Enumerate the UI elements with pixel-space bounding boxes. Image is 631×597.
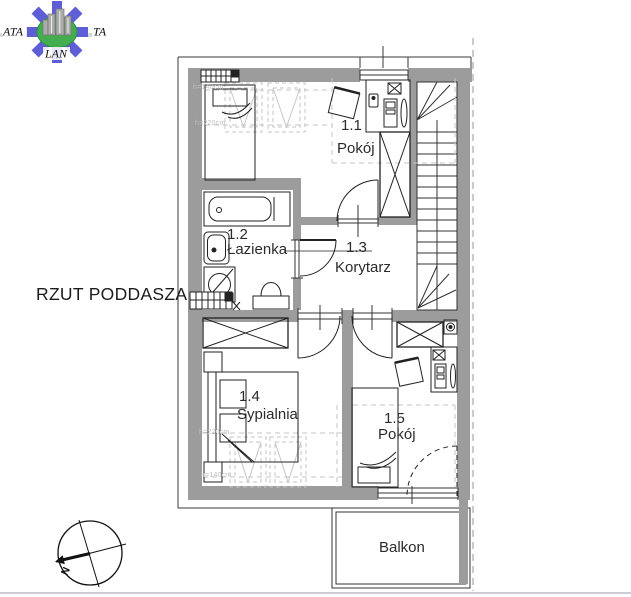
height-label-top-near: h=140cm [193,84,223,91]
chair-icon [328,87,360,119]
desk-icon [431,347,457,392]
room-1-5-name: Pokój [378,427,416,443]
shelf-icon [444,320,457,334]
wardrobe-icon [397,322,443,347]
building-outline [178,46,471,508]
plan-title: RZUT PODDASZA [36,285,187,303]
room-1-5-number: 1.5 [384,411,405,427]
height-label-top-inner: h=220cm [195,120,225,127]
radiator-icon [201,70,239,82]
floor-plan-page: ATA TA LAN [0,0,631,597]
radiator-icon [190,292,240,310]
chair-icon [395,358,423,386]
room-1-1-name: Pokój [337,141,375,157]
furniture-room-1-5 [352,320,457,487]
wardrobe-icon [203,318,288,348]
room-1-4-name: Sypialnia [237,407,298,423]
staircase [417,82,457,310]
room-1-2-name: Łazienka [227,242,287,258]
room-1-1-number: 1.1 [341,118,362,134]
height-label-bottom-inner: h=220cm [199,429,229,436]
desk-icon [366,80,410,132]
north-compass-icon: N [50,516,130,592]
toilet-icon [253,283,289,310]
windows-and-thresholds [291,70,458,504]
height-label-bottom-near: h=140cm [201,472,231,479]
walls [188,68,470,584]
doors [298,180,457,496]
furniture-room-1-1 [201,70,410,217]
room-1-3-name: Korytarz [335,260,391,276]
nightstand-icon [204,352,222,372]
room-1-3-number: 1.3 [346,240,367,256]
wardrobe-icon [380,132,410,217]
room-1-4-number: 1.4 [239,389,260,405]
washbasin-icon [204,232,229,264]
balcony-label: Balkon [379,540,425,556]
bathtub-icon [204,192,290,226]
north-label: N [59,565,73,577]
